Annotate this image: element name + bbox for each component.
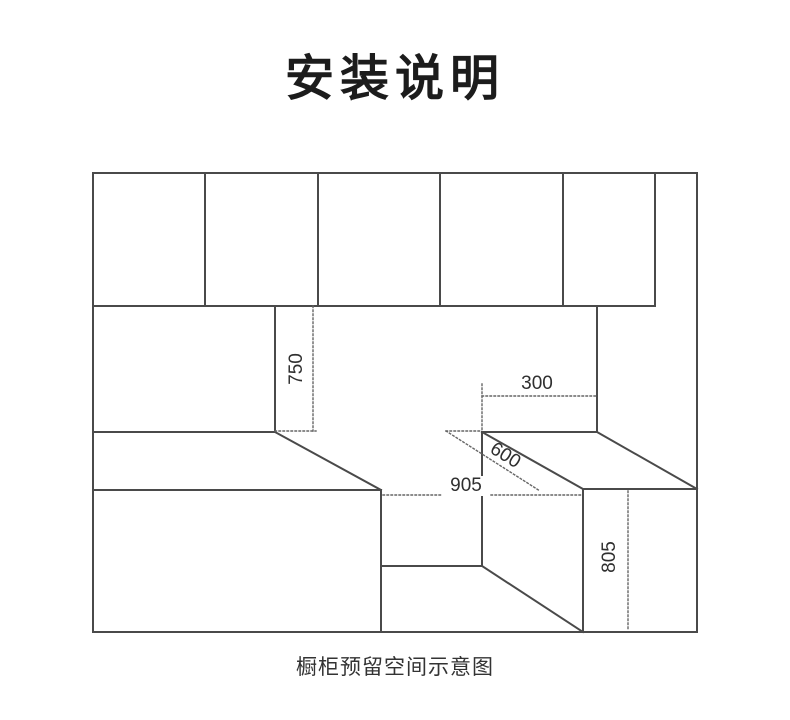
dim-label-300: 300 bbox=[513, 374, 561, 394]
diagram-caption: 橱柜预留空间示意图 bbox=[0, 655, 790, 680]
diagram-canvas bbox=[0, 0, 790, 720]
dim-label-905: 905 bbox=[442, 476, 490, 496]
appliance-niche bbox=[381, 432, 583, 632]
cabinet-diagram: 750 300 600 905 805 bbox=[0, 0, 790, 720]
left-counter bbox=[93, 306, 381, 632]
dim-label-750: 750 bbox=[287, 345, 307, 393]
wall-cabinets bbox=[93, 173, 655, 306]
page: 安装说明 bbox=[0, 0, 790, 720]
dim-label-805: 805 bbox=[600, 533, 620, 581]
